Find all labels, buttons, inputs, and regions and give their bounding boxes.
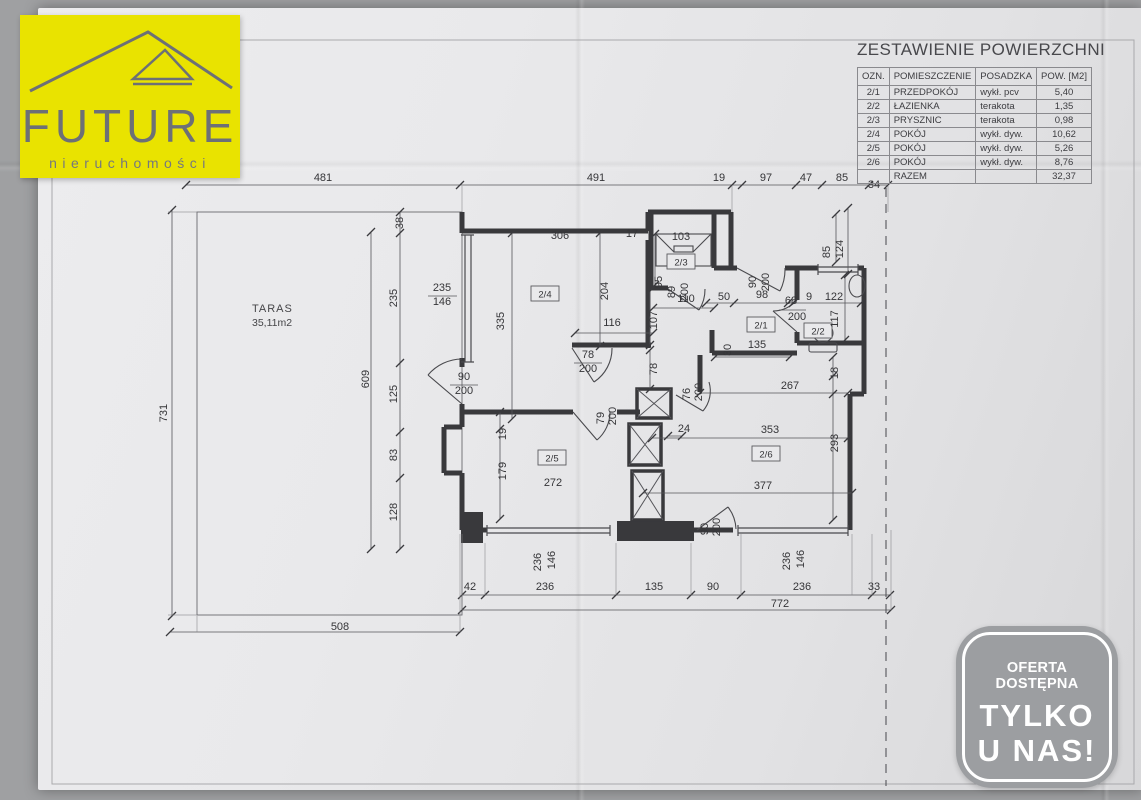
dim-label: 17 [626,228,638,240]
dim-label: 19 [497,428,509,440]
dim-label: 124 [834,240,846,258]
dim-label: 9 [806,291,812,303]
dim-label: 200 [607,407,619,425]
cell-empty [976,170,1037,184]
room-tag-label: 2/5 [545,454,558,465]
dim-label: 122 [825,291,843,303]
dim-label: 78 [582,349,594,361]
col-header-ozn: OZN. [858,68,890,86]
dim-label: 79 [595,412,607,424]
col-header-area: POW. [M2] [1037,68,1092,86]
dim-label: 50 [718,291,730,303]
cell-empty [858,170,890,184]
badge-border: OFERTA DOSTĘPNA TYLKO U NAS! [962,632,1112,782]
cell-room: POKÓJ [889,128,976,142]
dim-label: 236 [536,581,554,593]
dim-label: 508 [331,621,349,633]
logo-wordmark: FUTURE [20,103,240,149]
dim-label: 481 [314,172,332,184]
dim-label: 135 [748,339,766,351]
dim-label: 117 [829,310,841,328]
summary-row: 2/6 POKÓJ wykł. dyw. 8,76 [858,156,1092,170]
dim-label: 179 [497,462,509,480]
cell-floor: wykł. dyw. [976,142,1037,156]
dim-label: 235 [388,289,400,307]
dim-label: 85 [836,172,848,184]
dim-label: 609 [360,370,372,388]
agency-logo: FUTURE nieruchomości [20,15,240,178]
dim-label: 89 [666,286,678,298]
dim-label: 272 [544,477,562,489]
cell-room: PRZEDPOKÓJ [889,86,976,100]
window-room26 [738,525,848,536]
cell-total-label: RAZEM [889,170,976,184]
dim-label: 293 [829,434,841,452]
dim-label: 42 [464,581,476,593]
dim-label: 200 [679,283,691,301]
dim-label: 24 [678,423,690,435]
summary-row: 2/4 POKÓJ wykł. dyw. 10,62 [858,128,1092,142]
cell-room: ŁAZIENKA [889,100,976,114]
dimension-labels: 4814911997478534731382351258312860923514… [158,172,880,633]
terrace-outline [197,212,462,615]
wall-block [461,512,483,543]
dim-label: 90 [699,523,711,535]
dim-label: 68 [785,295,797,307]
cell-floor: terakota [976,114,1037,128]
dim-label: 47 [800,172,812,184]
cell-room: POKÓJ [889,156,976,170]
dim-label: 200 [579,363,597,375]
shaft-hatch [629,424,661,465]
window-room25 [487,525,610,536]
cell-area: 0,98 [1037,114,1092,128]
dim-label: 235 [433,282,451,294]
dim-label: 731 [158,404,170,422]
summary-row: 2/2 ŁAZIENKA terakota 1,35 [858,100,1092,114]
window-room24 [461,235,474,362]
summary-row: 2/3 PRYSZNIC terakota 0,98 [858,114,1092,128]
cell-area: 1,35 [1037,100,1092,114]
window-bathroom [818,264,858,275]
cell-floor: wykł. dyw. [976,156,1037,170]
cell-ozn: 2/4 [858,128,890,142]
cell-ozn: 2/2 [858,100,890,114]
dim-label: 306 [551,230,569,242]
shaft-hatch [632,471,663,520]
cell-ozn: 2/3 [858,114,890,128]
cell-floor: terakota [976,100,1037,114]
room-tag-label: 2/6 [759,450,772,461]
terrace-area: 35,11m2 [252,317,292,329]
dim-label: 83 [388,449,400,461]
dim-label: 90 [747,276,759,288]
cell-ozn: 2/1 [858,86,890,100]
dim-label: 38 [394,217,406,229]
cell-area: 5,26 [1037,142,1092,156]
terrace-label: TARAS [252,303,293,315]
cell-room: POKÓJ [889,142,976,156]
dim-label: 200 [693,383,705,401]
cell-total-value: 32,37 [1037,170,1092,184]
summary-table: OZN. POMIESZCZENIE POSADZKA POW. [M2] 2/… [857,67,1092,184]
dim-label: 146 [433,296,451,308]
dim-label: 491 [587,172,605,184]
cell-ozn: 2/5 [858,142,890,156]
cell-floor: wykł. dyw. [976,128,1037,142]
summary-row: 2/5 POKÓJ wykł. dyw. 5,26 [858,142,1092,156]
dim-label: 772 [771,598,789,610]
cell-floor: wykł. pcv [976,86,1037,100]
badge-line2: TYLKO [965,700,1109,731]
area-summary: ZESTAWIENIE POWIERZCHNI OZN. POMIESZCZEN… [857,40,1103,184]
cell-area: 10,62 [1037,128,1092,142]
exclusive-offer-badge: OFERTA DOSTĘPNA TYLKO U NAS! [956,626,1118,788]
dim-label: 236 [781,552,793,570]
dim-label: 135 [645,581,663,593]
cell-area: 5,40 [1037,86,1092,100]
dim-label: 200 [711,518,723,536]
dim-label: 78 [648,363,660,375]
shaft-hatch [637,389,671,418]
dim-label: 107 [648,311,660,329]
dim-label: 98 [756,289,768,301]
cell-room: PRYSZNIC [889,114,976,128]
dim-label: 128 [388,503,400,521]
dim-label: 18 [829,367,841,379]
dim-label: 85 [821,246,833,258]
dim-label: 200 [788,311,806,323]
dim-label: 146 [546,551,558,569]
badge-line3: U NAS! [965,735,1109,766]
dim-label: 90 [707,581,719,593]
col-header-room: POMIESZCZENIE [889,68,976,86]
room-tag-label: 2/2 [811,327,824,338]
dim-label: 97 [760,172,772,184]
summary-header-row: OZN. POMIESZCZENIE POSADZKA POW. [M2] [858,68,1092,86]
dim-label: 116 [603,317,621,329]
dim-label: 76 [681,388,693,400]
dim-label: 335 [495,312,507,330]
dim-label: 125 [388,385,400,403]
col-header-floor: POSADZKA [976,68,1037,86]
badge-line1: OFERTA DOSTĘPNA [965,660,1109,692]
photographed-floor-plan-sheet: TARAS 35,11m2 [0,0,1141,800]
summary-row: 2/1 PRZEDPOKÓJ wykł. pcv 5,40 [858,86,1092,100]
logo-subtitle: nieruchomości [20,155,240,171]
logo-roof-icon [20,15,240,178]
dim-label: 236 [532,553,544,571]
dim-label: 90 [458,371,470,383]
dim-label: 377 [754,480,772,492]
summary-total-row: RAZEM 32,37 [858,170,1092,184]
dim-label: 200 [455,385,473,397]
dim-label: 146 [795,550,807,568]
dim-label: 30 [722,344,734,356]
dim-label: 19 [713,172,725,184]
dim-label: 33 [868,581,880,593]
cell-ozn: 2/6 [858,156,890,170]
cell-area: 8,76 [1037,156,1092,170]
room-tag-label: 2/1 [754,321,767,332]
dim-label: 236 [793,581,811,593]
dim-label: 267 [781,380,799,392]
room-tag-label: 2/4 [538,290,551,301]
wall-block [617,521,694,541]
dim-label: 353 [761,424,779,436]
dim-label: 103 [672,231,690,243]
summary-title: ZESTAWIENIE POWIERZCHNI [857,40,1103,60]
dim-label: 204 [599,282,611,300]
dim-label: 95 [653,276,665,288]
room-tag-label: 2/3 [674,258,687,269]
